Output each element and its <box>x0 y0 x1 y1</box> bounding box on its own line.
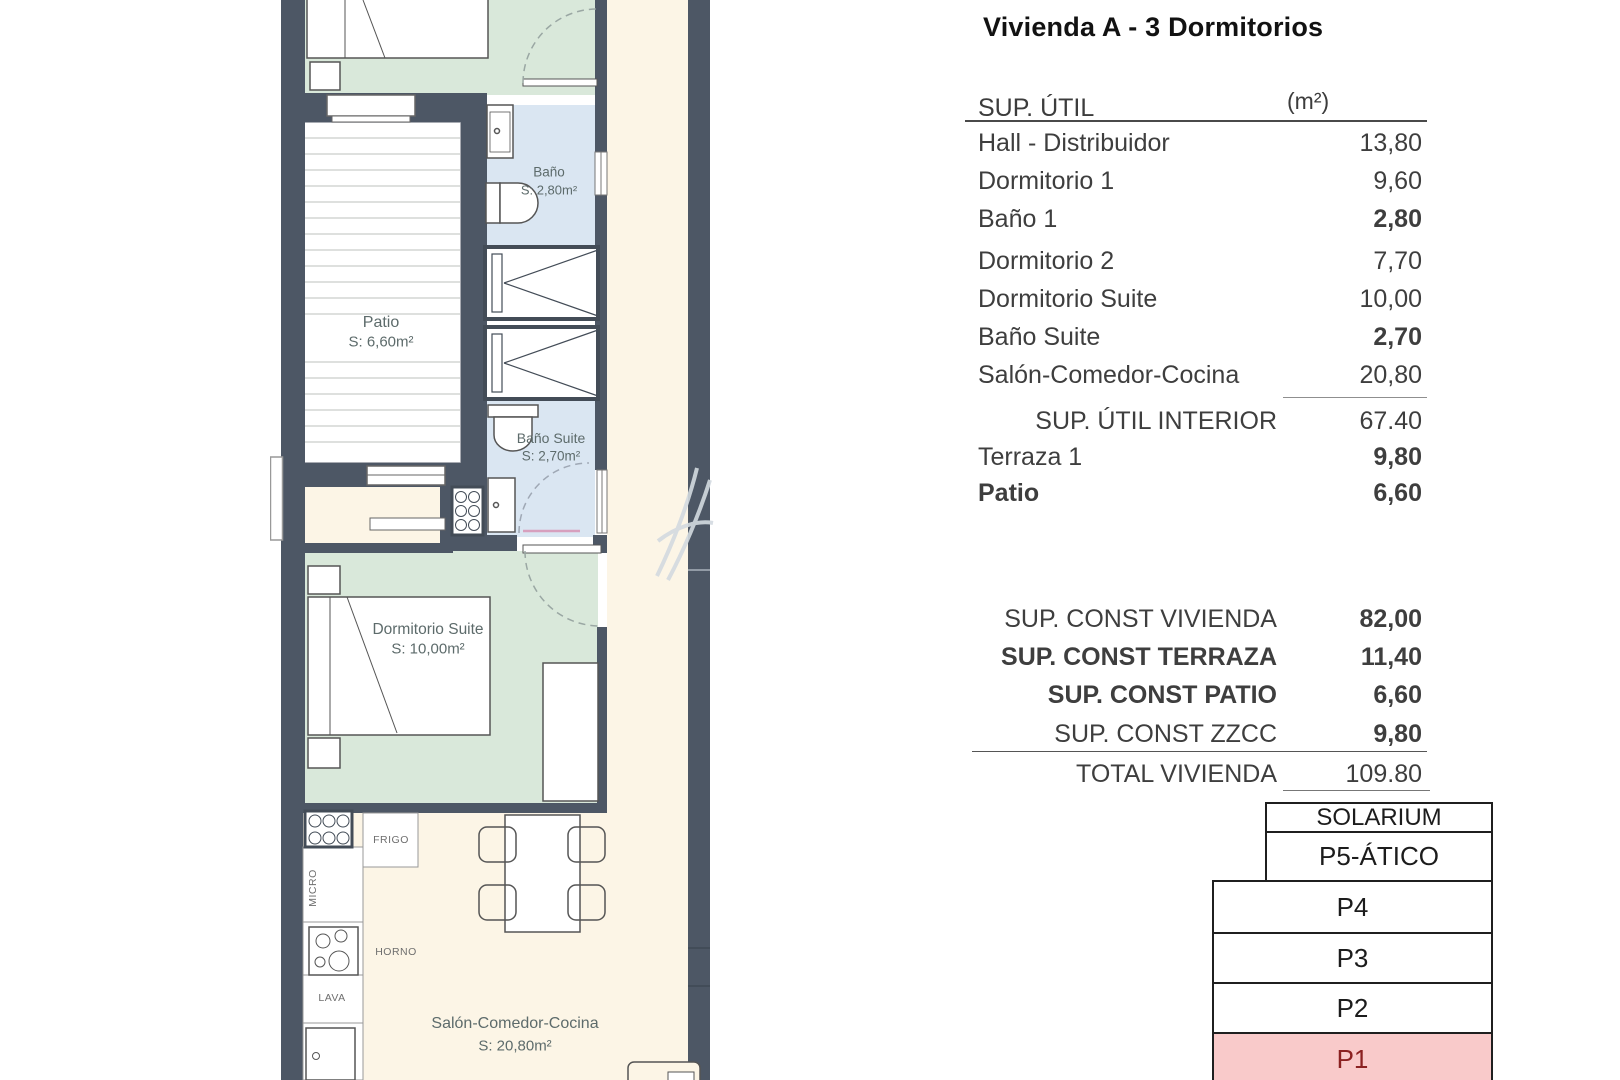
patio-room-label: Patio <box>363 314 399 332</box>
total-underline <box>1283 790 1430 791</box>
row-value: 82,00 <box>1359 604 1422 634</box>
dishwasher-label: LAVA <box>318 992 345 1004</box>
row-label: SUP. CONST ZZCC <box>978 719 1277 749</box>
row-label: Dormitorio 1 <box>978 166 1114 196</box>
table-row: Salón-Comedor-Cocina 20,80 <box>978 360 1422 390</box>
bano-room-label: Baño <box>533 165 565 180</box>
bano-room-area: S: 2,80m² <box>521 183 577 198</box>
row-value: 9,60 <box>1373 166 1422 196</box>
row-label: Dormitorio 2 <box>978 246 1114 276</box>
row-value: 6,60 <box>1373 478 1422 508</box>
kitchen-sink <box>306 1028 355 1080</box>
level-box-p2: P2 <box>1212 982 1493 1034</box>
row-label: Hall - Distribuidor <box>978 128 1170 158</box>
oven <box>309 927 358 975</box>
row-label: SUP. CONST VIVIENDA <box>978 604 1277 634</box>
table-row: Hall - Distribuidor 13,80 <box>978 128 1422 158</box>
row-label: Baño Suite <box>978 322 1100 352</box>
floor-plan-drawing <box>270 0 715 1080</box>
level-box-p3: P3 <box>1212 932 1493 984</box>
table-header-unit: (m²) <box>1287 88 1329 115</box>
row-value: 2,70 <box>1373 322 1422 352</box>
row-value: 20,80 <box>1359 360 1422 390</box>
row-label: Patio <box>978 478 1039 508</box>
salon-room-area: S: 20,80m² <box>478 1038 551 1055</box>
row-value: 7,70 <box>1373 246 1422 276</box>
table-row: Baño 1 2,80 <box>978 204 1422 234</box>
hob <box>305 811 352 847</box>
row-label: SUP. ÚTIL INTERIOR <box>978 406 1277 436</box>
row-label: SUP. CONST TERRAZA <box>978 642 1277 672</box>
row-label: Dormitorio Suite <box>978 284 1157 314</box>
table-header-label: SUP. ÚTIL <box>978 94 1094 123</box>
floorplan-sheet: Patio S: 6,60m² Baño S: 2,80m² Baño Suit… <box>0 0 1620 1080</box>
row-value: 6,60 <box>1373 680 1422 710</box>
microwave-label: MICRO <box>307 869 319 907</box>
level-box-p5-atico: P5-ÁTICO <box>1265 831 1493 882</box>
row-value: 11,40 <box>1361 642 1422 672</box>
table-row: Dormitorio 2 7,70 <box>978 246 1422 276</box>
dormitorio-suite-room-area: S: 10,00m² <box>391 641 464 658</box>
table-row: Patio 6,60 <box>978 478 1422 508</box>
page-title: Vivienda A - 3 Dormitorios <box>983 12 1323 43</box>
table-header-divider <box>965 120 1427 122</box>
table-row-subtotal: SUP. ÚTIL INTERIOR 67.40 <box>978 406 1422 436</box>
row-value: 10,00 <box>1359 284 1422 314</box>
summary-row: SUP. CONST PATIO 6,60 <box>978 680 1422 710</box>
row-value: 9,80 <box>1373 719 1422 749</box>
total-value: 109.80 <box>1346 759 1422 789</box>
row-label: Terraza 1 <box>978 442 1082 472</box>
washer <box>452 487 483 535</box>
row-label: Baño 1 <box>978 204 1057 234</box>
total-divider <box>972 751 1427 752</box>
sofa <box>628 1062 700 1080</box>
bathroom-sink <box>487 105 513 158</box>
row-value: 2,80 <box>1373 204 1422 234</box>
dormitorio-suite-room-label: Dormitorio Suite <box>372 621 483 639</box>
level-box-p1-highlighted: P1 <box>1212 1032 1493 1080</box>
bano-suite-room-area: S: 2,70m² <box>522 449 581 464</box>
table-row: Baño Suite 2,70 <box>978 322 1422 352</box>
summary-row: SUP. CONST VIVIENDA 82,00 <box>978 604 1422 634</box>
patio-deck <box>302 122 461 463</box>
row-value: 9,80 <box>1373 442 1422 472</box>
salon-room-label: Salón-Comedor-Cocina <box>431 1015 598 1033</box>
summary-row: SUP. CONST TERRAZA 11,40 <box>978 642 1422 672</box>
interior-subtotal-divider <box>1283 397 1427 398</box>
table-row: Dormitorio 1 9,60 <box>978 166 1422 196</box>
table-row: Dormitorio Suite 10,00 <box>978 284 1422 314</box>
suite-sink <box>488 478 515 532</box>
summary-row: SUP. CONST ZZCC 9,80 <box>978 719 1422 749</box>
table-row: Terraza 1 9,80 <box>978 442 1422 472</box>
row-value: 13,80 <box>1359 128 1422 158</box>
floor-plan <box>270 0 715 1080</box>
wardrobe-closets <box>485 247 598 399</box>
level-box-solarium: SOLARIUM <box>1265 802 1493 833</box>
level-box-p4: P4 <box>1212 880 1493 934</box>
bano-suite-room-label: Baño Suite <box>517 430 586 446</box>
oven-label: HORNO <box>375 946 417 958</box>
row-label: Salón-Comedor-Cocina <box>978 360 1239 390</box>
row-value: 67.40 <box>1359 406 1422 436</box>
patio-room-area: S: 6,60m² <box>348 334 413 351</box>
total-label: TOTAL VIVIENDA <box>978 759 1277 789</box>
total-row: TOTAL VIVIENDA 109.80 <box>978 759 1422 789</box>
row-label: SUP. CONST PATIO <box>978 680 1277 710</box>
fridge-label: FRIGO <box>373 834 409 846</box>
